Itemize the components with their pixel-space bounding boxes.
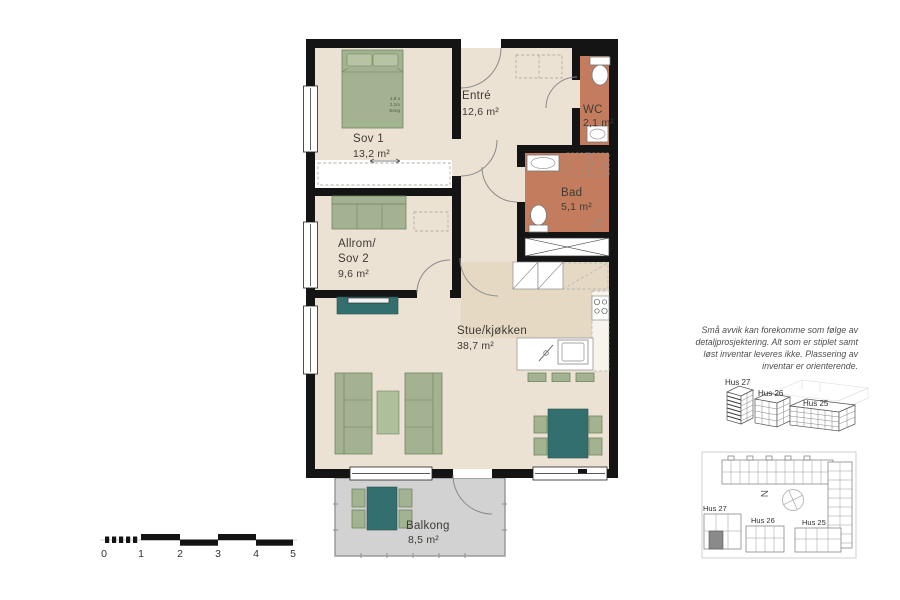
scale-segments [141, 534, 293, 546]
room-label-sov1: Sov 1 [353, 133, 384, 145]
hus27-building-icon [727, 386, 753, 424]
floorplan-canvas: 1,8 x 2,1m Seng [0, 0, 900, 600]
kitchen-island [517, 338, 593, 370]
room-label-entre: Entré [462, 90, 491, 102]
allrom-sofa-icon [332, 196, 406, 229]
site-hus27-label: Hus 27 [703, 504, 727, 513]
bed-size-note-2: 2,1m [390, 102, 400, 107]
floorplan-page: 1,8 x 2,1m Seng [0, 0, 900, 600]
wall-bad-left-upper [517, 145, 525, 167]
wall-sov1-entre-upper [452, 48, 461, 139]
wall-sov1-allrom [306, 188, 461, 196]
disclaimer-line-1: Små avvik kan forekomme som følge av [702, 325, 859, 335]
hus25-3d-label: Hus 25 [803, 399, 829, 408]
scale-label-1: 1 [138, 548, 144, 560]
window-stue-bottom-left [350, 467, 432, 480]
room-area-stue: 38,7 m² [457, 340, 494, 352]
bed-icon: 1,8 x 2,1m Seng [342, 50, 403, 128]
room-area-entre: 12,6 m² [462, 106, 499, 118]
site-top-strip [722, 456, 833, 484]
sofa-right-icon [405, 373, 442, 454]
site-plan: Hus 27 Hus 26 Hus 25 N [702, 452, 856, 558]
buildings-3d-overview: Hus 27 Hus 26 Hus 25 [725, 378, 868, 431]
tv-bench-icon [337, 297, 398, 314]
scale-label-4: 4 [253, 548, 259, 560]
bad-toilet-icon [529, 205, 548, 232]
shaft [525, 238, 609, 256]
hus26-building-icon [755, 393, 790, 427]
disclaimer-line-3: løst inventar leveres ikke. Plassering a… [704, 349, 859, 359]
window-allrom [304, 222, 318, 288]
wall-bad-top [517, 145, 618, 153]
room-area-sov1: 13,2 m² [353, 148, 390, 160]
vent-mark [578, 469, 587, 474]
room-label-stue: Stue/kjøkken [457, 325, 527, 337]
room-label-balkong: Balkong [406, 520, 450, 532]
room-area-balkong: 8,5 m² [408, 534, 439, 546]
site-hus26-block [746, 526, 784, 552]
wall-shaft-top [517, 232, 609, 238]
wall-shaft-bottom [517, 256, 609, 262]
scale-label-5: 5 [290, 548, 296, 560]
window-stue-bottom-right [533, 467, 607, 480]
scale-label-0: 0 [101, 548, 107, 560]
tv-icon [348, 298, 389, 303]
room-label-allrom-2: Sov 2 [338, 253, 369, 265]
room-label-bad: Bad [561, 187, 582, 199]
room-label-wc: WC [583, 104, 603, 116]
bed-size-note-1: 1,8 x [390, 96, 401, 101]
disclaimer-text: Små avvik kan forekomme som følge av det… [696, 325, 859, 371]
wall-wc-upper [572, 48, 580, 80]
hus27-3d-label: Hus 27 [725, 378, 751, 387]
site-hus27-block [704, 514, 741, 549]
disclaimer-line-2: detaljprosjektering. Alt som er stiplet … [696, 337, 859, 347]
sofa-left-icon [335, 373, 372, 454]
room-area-wc: 2,1 m² [583, 117, 614, 129]
wall-allrom-stue-right [450, 290, 461, 298]
bar-stools [528, 373, 594, 382]
window-stue-left [304, 306, 318, 374]
scale-label-3: 3 [215, 548, 221, 560]
north-label: N [758, 490, 769, 497]
entry-door-opening [461, 39, 501, 48]
site-hus26-label: Hus 26 [751, 516, 775, 525]
site-hus25-block [795, 528, 841, 552]
room-label-allrom-1: Allrom/ [338, 238, 376, 250]
stove-icon [592, 296, 609, 320]
disclaimer-line-4: inventar er orienterende. [762, 361, 858, 371]
site-hus25-label: Hus 25 [802, 518, 826, 527]
wardrobe-niche [315, 160, 452, 188]
room-area-allrom: 9,6 m² [338, 268, 369, 280]
coffee-table-icon [377, 391, 399, 434]
highlighted-unit [709, 531, 723, 549]
window-sov1 [304, 86, 318, 152]
hus26-3d-label: Hus 26 [758, 389, 784, 398]
room-area-bad: 5,1 m² [561, 201, 592, 213]
balcony-door-opening [453, 469, 492, 478]
bad-sink-icon [527, 155, 559, 171]
scale-bar: 0 1 2 3 4 5 [100, 534, 297, 560]
bed-size-note-3: Seng [389, 108, 400, 113]
scale-label-2: 2 [177, 548, 183, 560]
